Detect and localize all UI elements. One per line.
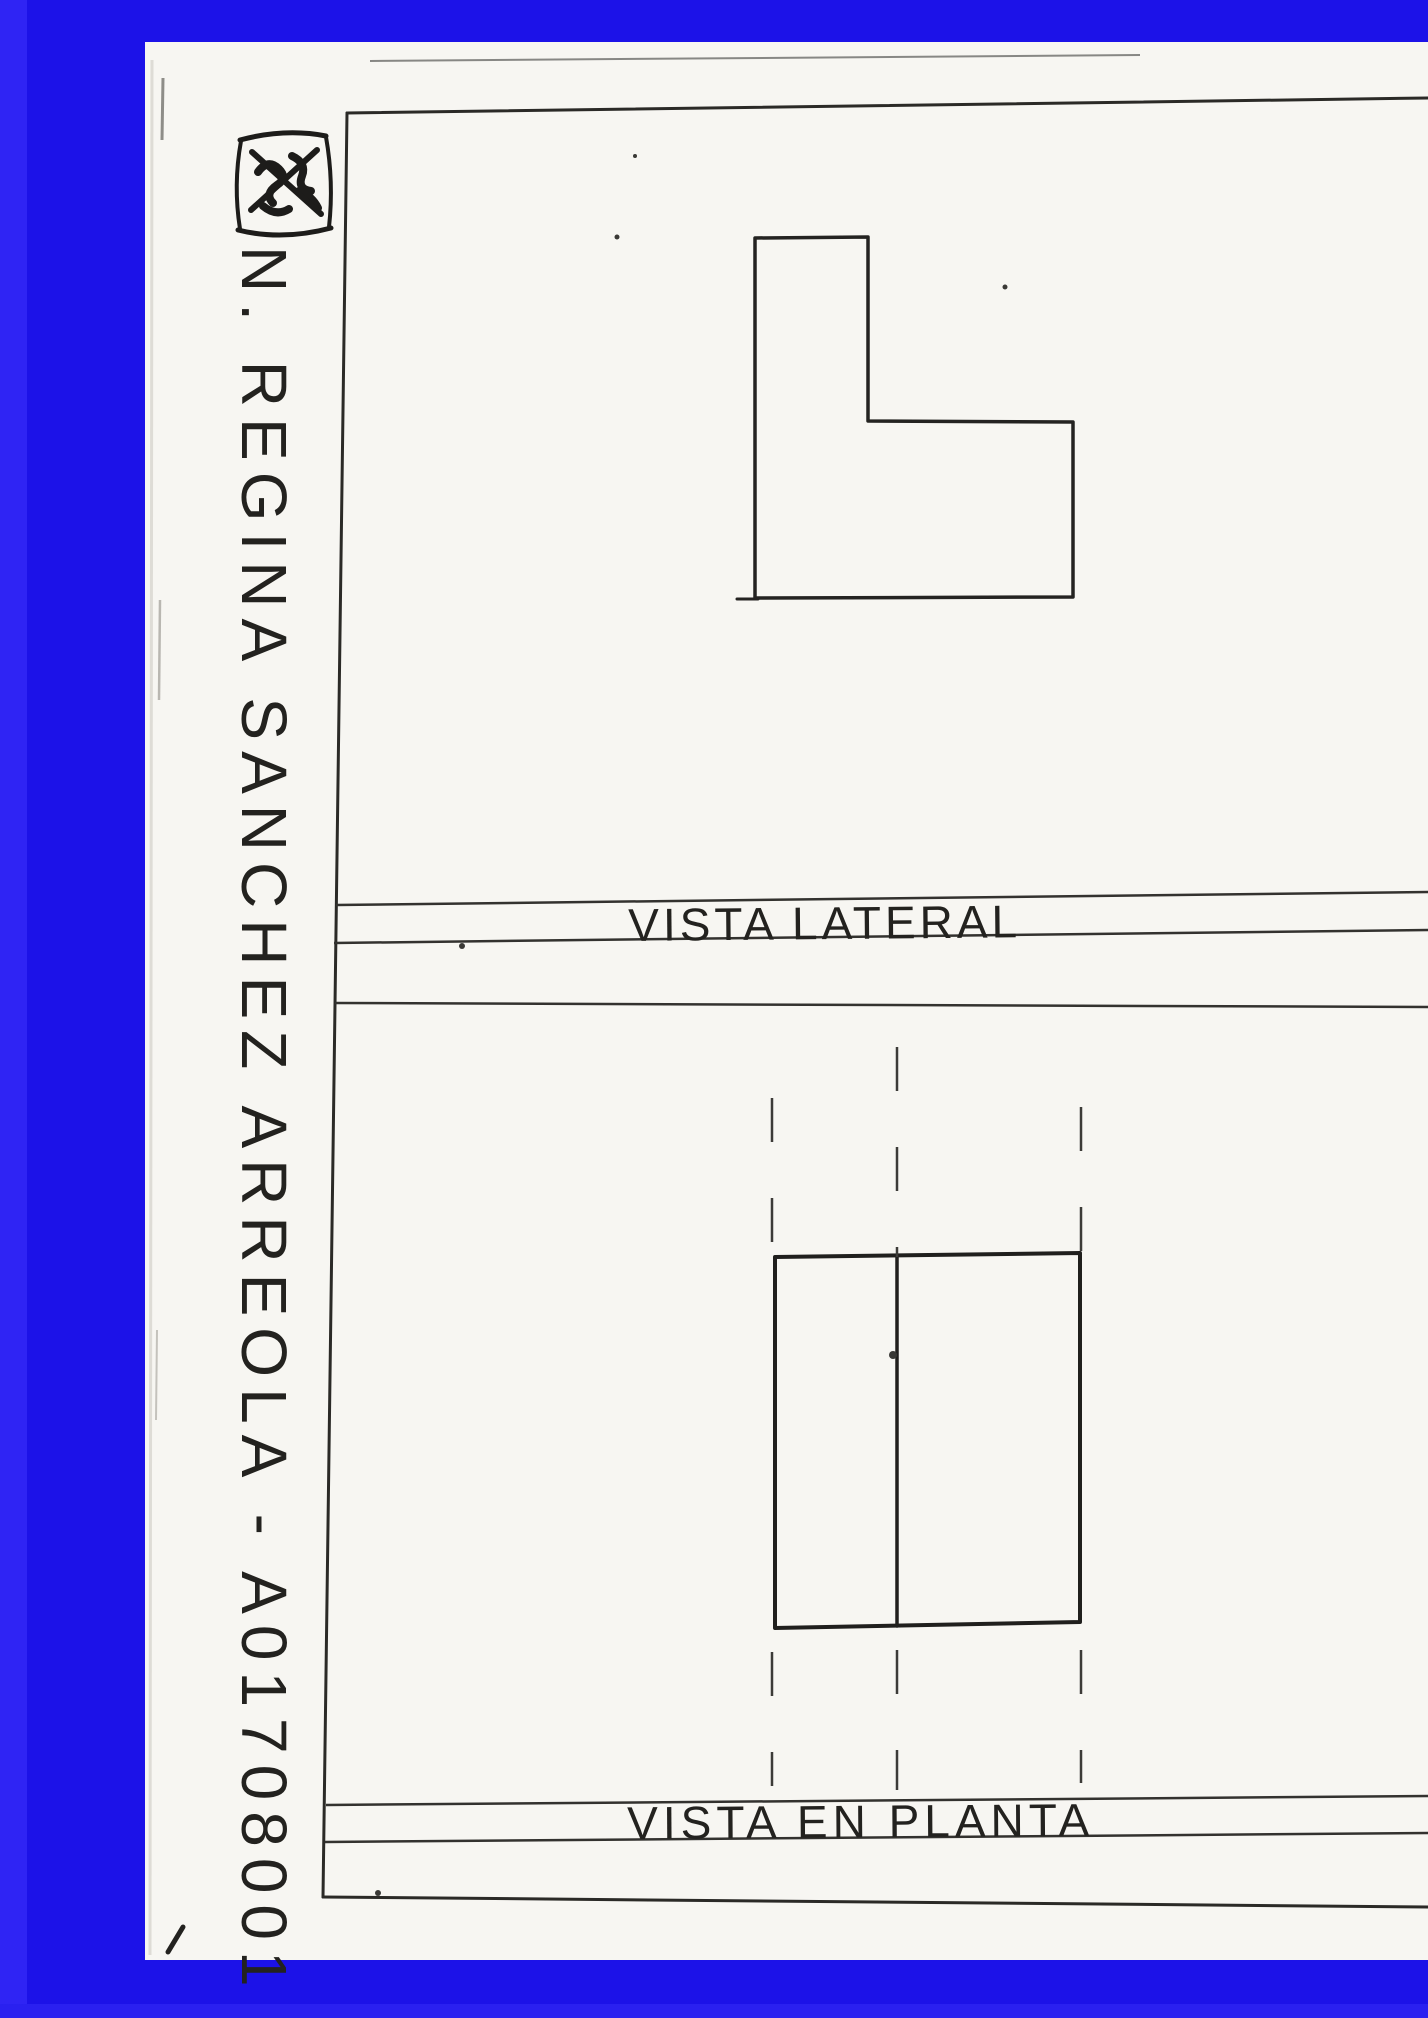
projection-dashed-lines bbox=[772, 1047, 1081, 1790]
plan-view-label: VISTA EN PLANTA bbox=[627, 1793, 1094, 1850]
plan-view-rectangle bbox=[775, 1253, 1080, 1628]
paper-edge-shadow bbox=[150, 60, 163, 1955]
l-shape-side-view bbox=[737, 237, 1073, 599]
paper-fold-line bbox=[370, 55, 1140, 61]
scanned-page: N. REGINA SANCHEZ ARREOLA - A01708001 VI… bbox=[0, 0, 1428, 2018]
side-view-label: VISTA LATERAL bbox=[628, 894, 1021, 952]
author-name-vertical: N. REGINA SANCHEZ ARREOLA - A01708001 bbox=[218, 246, 310, 1886]
ink-specks bbox=[375, 154, 1008, 1896]
technical-drawing-linework bbox=[0, 0, 1428, 2018]
defaced-stamp bbox=[237, 133, 331, 235]
section-divider-line bbox=[335, 1003, 1428, 1007]
pen-tick bbox=[168, 1927, 183, 1952]
